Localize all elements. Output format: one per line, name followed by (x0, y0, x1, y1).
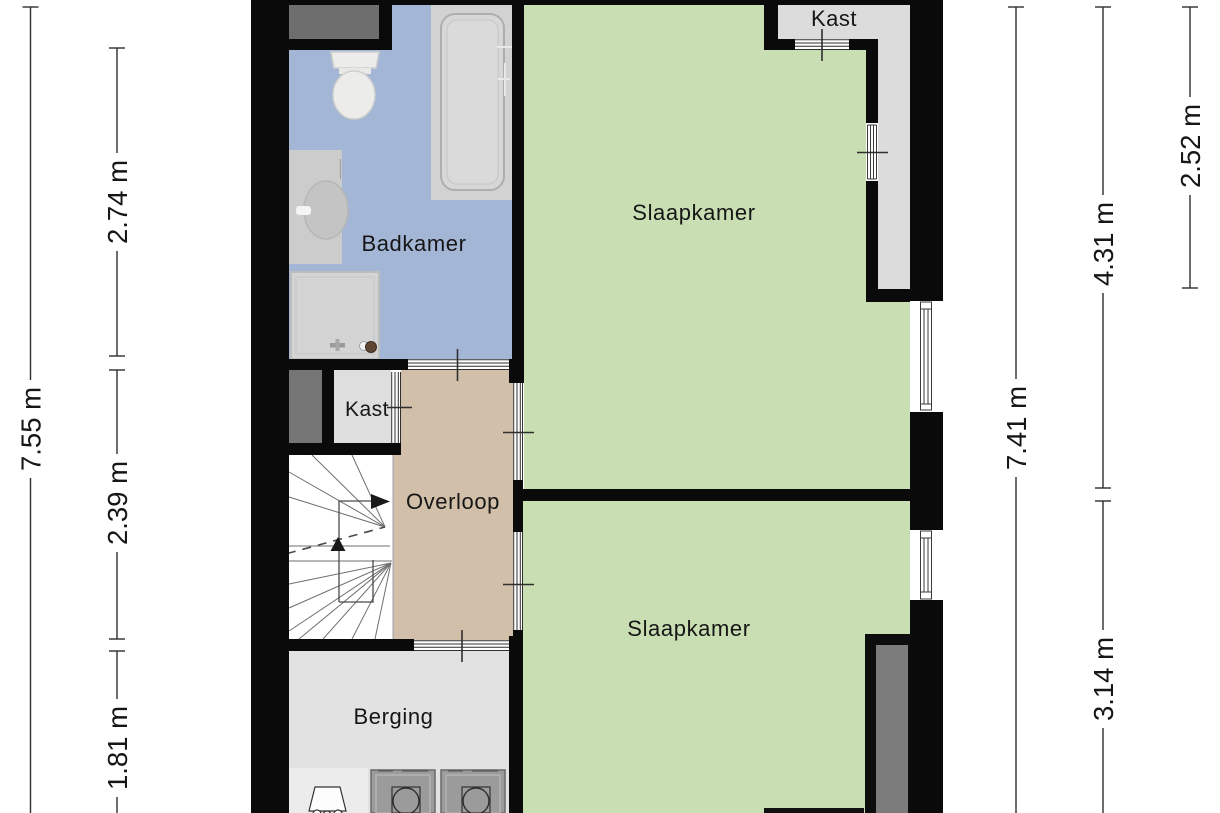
svg-text:Slaapkamer: Slaapkamer (632, 200, 755, 225)
svg-text:2.74 m: 2.74 m (102, 160, 133, 244)
svg-text:4.31 m: 4.31 m (1088, 202, 1119, 286)
svg-text:Slaapkamer: Slaapkamer (627, 616, 750, 641)
svg-text:7.41 m: 7.41 m (1001, 386, 1032, 470)
svg-text:2.39 m: 2.39 m (102, 461, 133, 545)
svg-text:Berging: Berging (353, 704, 433, 729)
svg-text:7.55 m: 7.55 m (16, 387, 47, 471)
svg-text:Kast: Kast (345, 398, 389, 421)
svg-text:Badkamer: Badkamer (361, 231, 466, 256)
svg-text:Overloop: Overloop (406, 489, 500, 514)
svg-text:2.52 m: 2.52 m (1175, 104, 1206, 188)
svg-text:Kast: Kast (811, 6, 857, 31)
svg-text:1.81 m: 1.81 m (102, 706, 133, 790)
svg-text:3.14 m: 3.14 m (1088, 637, 1119, 721)
